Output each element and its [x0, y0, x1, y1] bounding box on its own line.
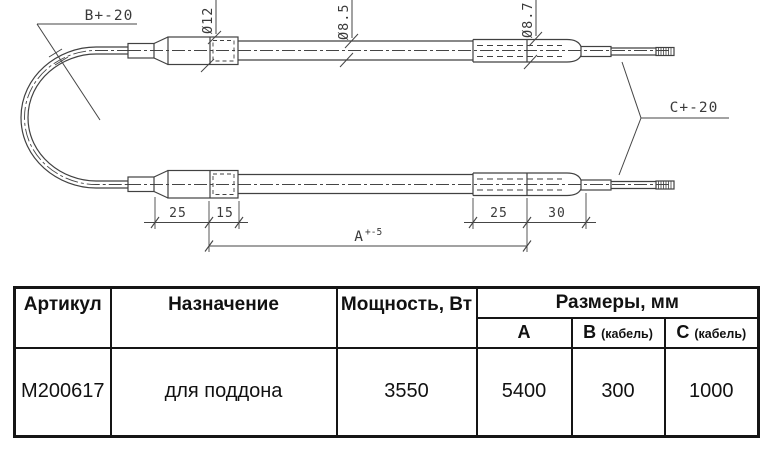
header-dimensions: Размеры, мм — [477, 288, 759, 318]
header-dim-b: B (кабель) — [572, 318, 665, 348]
len-25-left-label: 25 — [169, 206, 187, 221]
cell-power: 3550 — [337, 348, 477, 437]
cell-article: M200617 — [15, 348, 111, 437]
header-power: Мощность, Вт — [337, 288, 477, 348]
cell-dim-b: 300 — [572, 348, 665, 437]
dia-fitting-label: Ø8.7 — [520, 1, 536, 38]
spec-table: Артикул Назначение Мощность, Вт Размеры,… — [13, 286, 760, 438]
header-dim-c-letter: C — [676, 322, 689, 342]
header-dim-c: C (кабель) — [665, 318, 759, 348]
dim-c-label: C+-20 — [670, 100, 719, 116]
dim-a-label: A — [354, 229, 364, 245]
header-dim-c-note: (кабель) — [694, 327, 746, 341]
header-dim-a: A — [477, 318, 572, 348]
header-dim-b-note: (кабель) — [601, 327, 653, 341]
bottom-wire-end-hatch — [659, 181, 672, 189]
dim-a-tolerance: +-5 — [365, 227, 382, 238]
len-30-label: 30 — [548, 206, 566, 221]
dim-b-label: B+-20 — [85, 8, 134, 24]
header-article: Артикул — [15, 288, 111, 348]
cell-dim-a: 5400 — [477, 348, 572, 437]
dia-tube-label: Ø8.5 — [336, 3, 352, 40]
leader-lines — [37, 0, 729, 175]
header-purpose: Назначение — [111, 288, 337, 348]
len-25-right-label: 25 — [490, 206, 508, 221]
top-wire-end-hatch — [659, 48, 672, 56]
header-dim-b-letter: B — [583, 322, 596, 342]
cell-dim-c: 1000 — [665, 348, 759, 437]
u-bend-cable — [21, 47, 128, 188]
table-row: M200617 для поддона 3550 5400 300 1000 — [15, 348, 759, 437]
page: B+-20 C+-20 Ø12 Ø8.5 Ø8.7 25 15 25 30 A … — [0, 0, 765, 451]
centerlines — [25, 51, 671, 185]
dia-nut-label: Ø12 — [200, 7, 216, 34]
dimension-lines — [144, 193, 596, 252]
len-15-label: 15 — [216, 206, 234, 221]
technical-drawing: B+-20 C+-20 Ø12 Ø8.5 Ø8.7 25 15 25 30 A … — [0, 0, 765, 282]
cell-purpose: для поддона — [111, 348, 337, 437]
